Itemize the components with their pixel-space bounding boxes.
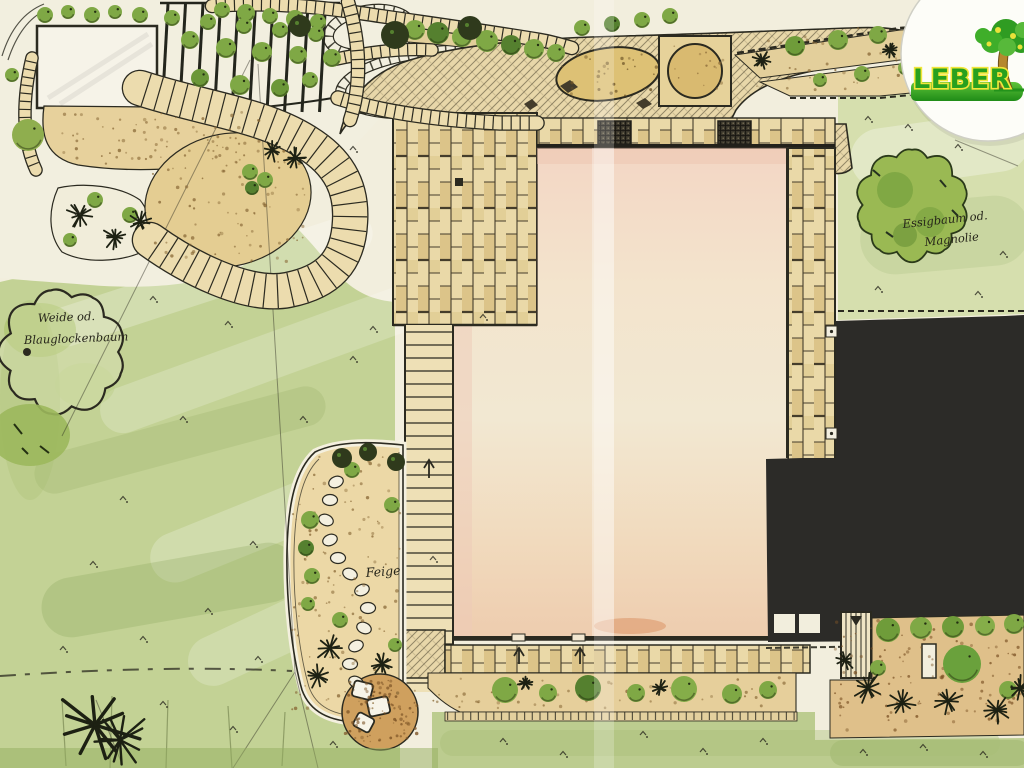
plan-canvas: Weide od. Blauglockenbaum Essigbaum od. … (0, 0, 1024, 768)
deck-ladder (841, 612, 871, 678)
label-feige: Feige (364, 563, 401, 580)
hatch-landing (400, 630, 445, 678)
terrace-drain (455, 178, 463, 186)
label-weide-line1: Weide od. (38, 309, 96, 325)
logo-text: LEBER (913, 64, 1011, 95)
house-entry-band (537, 118, 835, 148)
garden-plan-sheet: Weide od. Blauglockenbaum Essigbaum od. … (0, 0, 1024, 768)
raised-planter (922, 644, 936, 678)
pillar-post (774, 614, 795, 633)
terrace-paving (393, 113, 537, 325)
entry-mat (718, 121, 751, 144)
paper-fold-crease (594, 0, 614, 768)
pillar-post (799, 614, 820, 633)
bottom-wash (0, 748, 438, 768)
side-paving (788, 148, 835, 460)
bottom-terrace-band (445, 645, 810, 673)
